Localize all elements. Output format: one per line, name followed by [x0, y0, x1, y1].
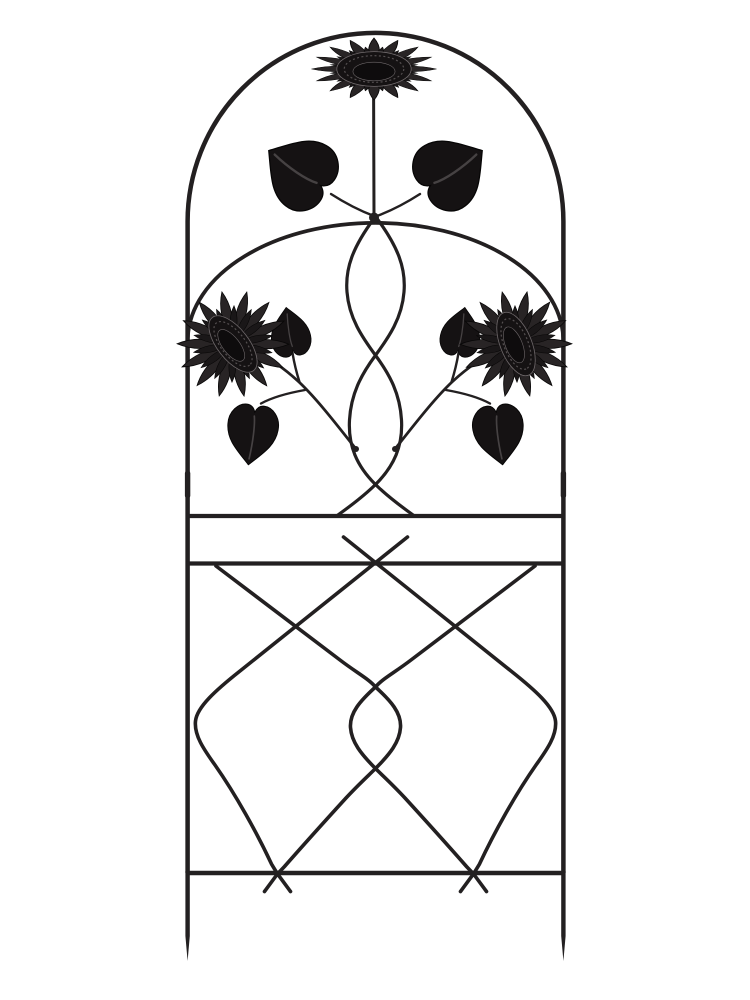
frame	[185, 33, 566, 961]
top-sunflower	[312, 38, 436, 100]
lattice-loop-wire-right	[344, 537, 556, 892]
left-sleeve-joint	[185, 471, 190, 498]
right-ground-stake	[561, 871, 565, 961]
junction-weld	[369, 213, 379, 223]
product-photo: Black wrought-metal garden trellis with …	[0, 0, 750, 1000]
top-sunflower-center-disk	[337, 52, 411, 87]
top-left-heart-leaf	[248, 120, 374, 220]
lower-lattice	[195, 537, 555, 892]
lattice-loop-wire-left	[195, 537, 407, 892]
top-right-heart-leaf	[377, 120, 503, 220]
left-ground-stake	[185, 871, 189, 961]
trellis-illustration	[0, 0, 750, 1000]
disk-inner-bowl	[353, 62, 395, 81]
right-sleeve-joint	[561, 471, 566, 498]
